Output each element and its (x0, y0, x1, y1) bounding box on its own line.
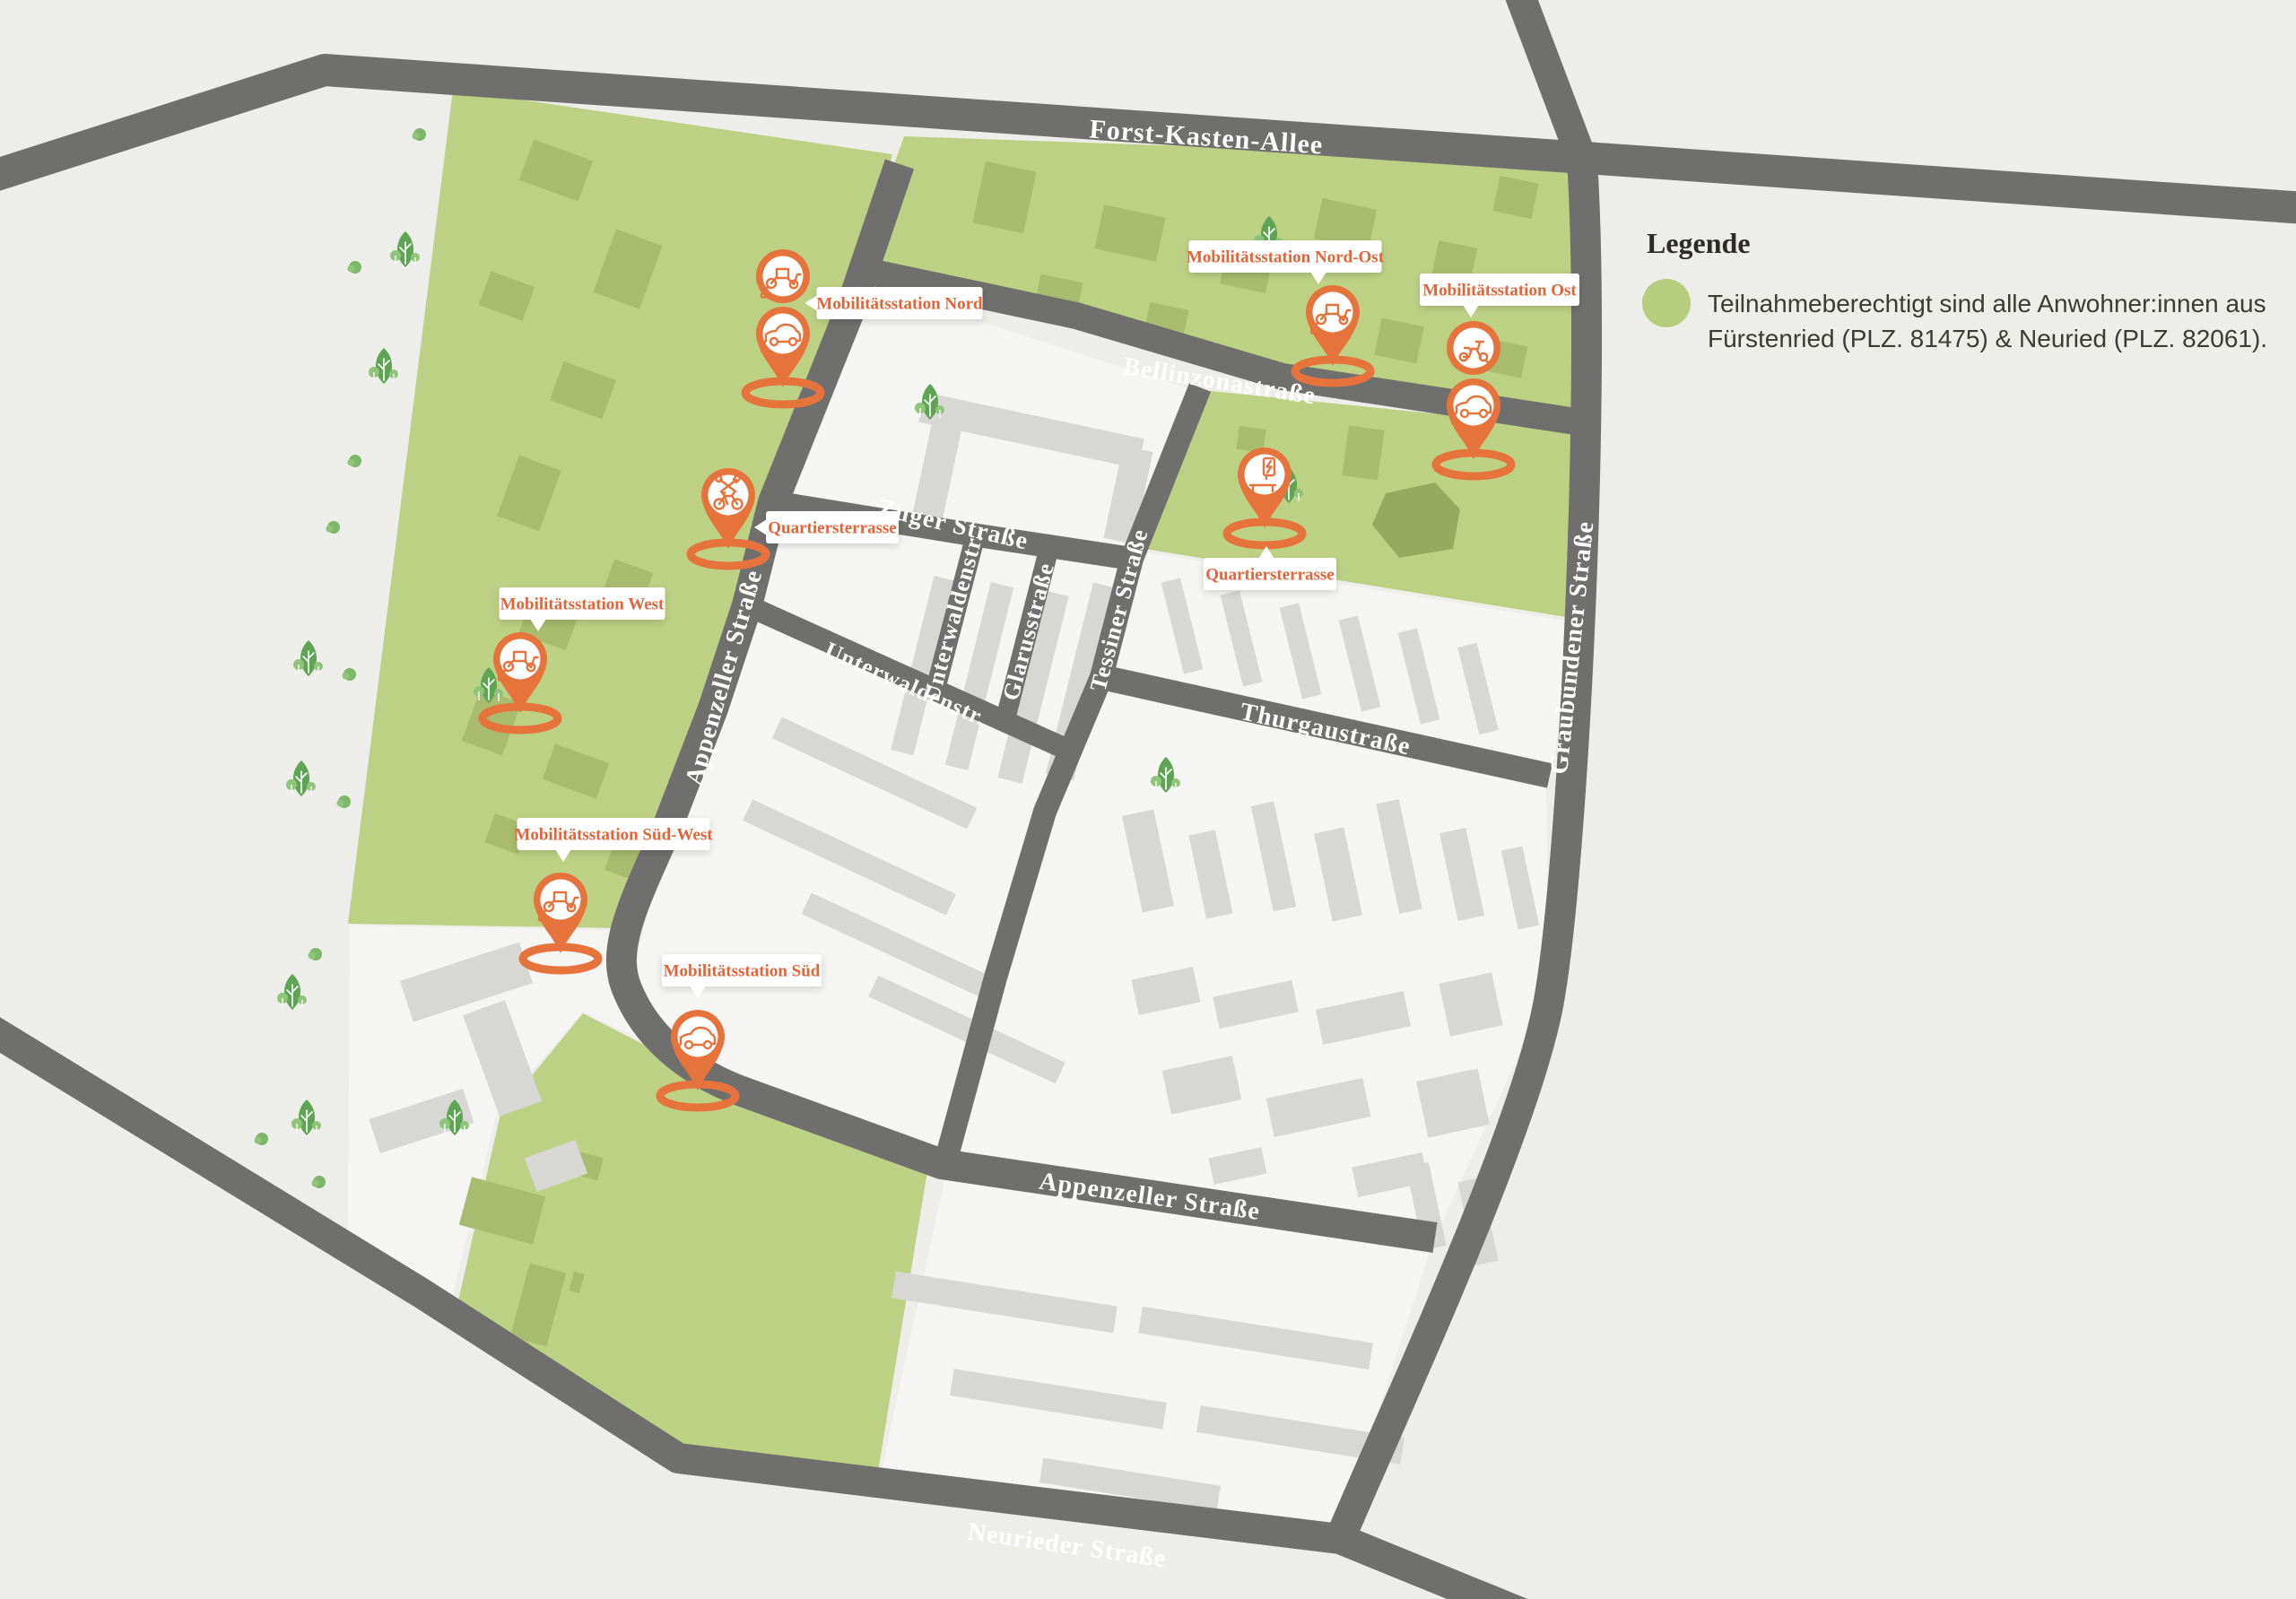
legend-text-line1: Teilnahmeberechtigt sind alle Anwohner:i… (1708, 290, 2266, 317)
quartiersterrasse-west-label: Quartiersterrasse (754, 511, 899, 543)
pin-label-text: Mobilitätsstation Nord (816, 294, 983, 313)
pin-label-text: Mobilitätsstation Nord-Ost (1187, 248, 1385, 266)
mobilitaetsstation-nord-label: Mobilitätsstation Nord (805, 287, 984, 319)
building (1439, 972, 1502, 1036)
legend-text-line2: Fürstenried (PLZ. 81475) & Neuried (PLZ.… (1708, 325, 2267, 352)
pin-label-text: Mobilitätsstation West (500, 595, 665, 613)
pin-label-text: Mobilitätsstation Süd (664, 961, 821, 980)
pin-label-text: Mobilitätsstation Ost (1422, 281, 1577, 300)
pin-label-text: Quartiersterrasse (1205, 565, 1335, 584)
legend-green-swatch (1642, 279, 1691, 327)
building (1342, 425, 1384, 480)
map-stage: Forst-Kasten-AlleeBellinzonastraßeZuger … (0, 0, 2296, 1599)
legend-title: Legende (1647, 227, 1751, 259)
neighborhood-map: Forst-Kasten-AlleeBellinzonastraßeZuger … (0, 0, 2296, 1599)
pin-label-text: Quartiersterrasse (768, 518, 897, 537)
pin-label-text: Mobilitätsstation Süd-West (514, 825, 713, 844)
